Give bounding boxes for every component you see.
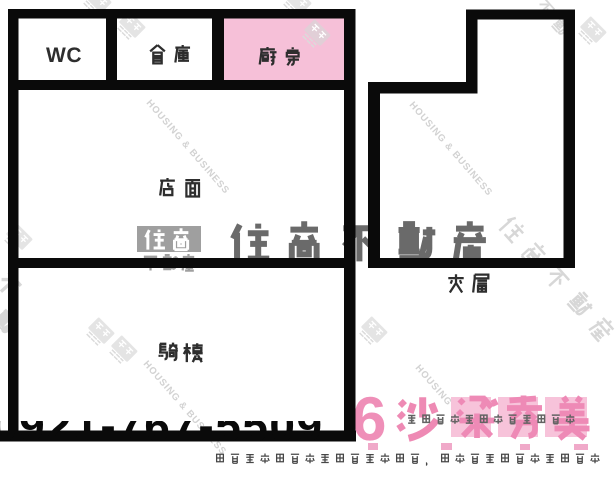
svg-text:WC: WC — [46, 44, 82, 67]
